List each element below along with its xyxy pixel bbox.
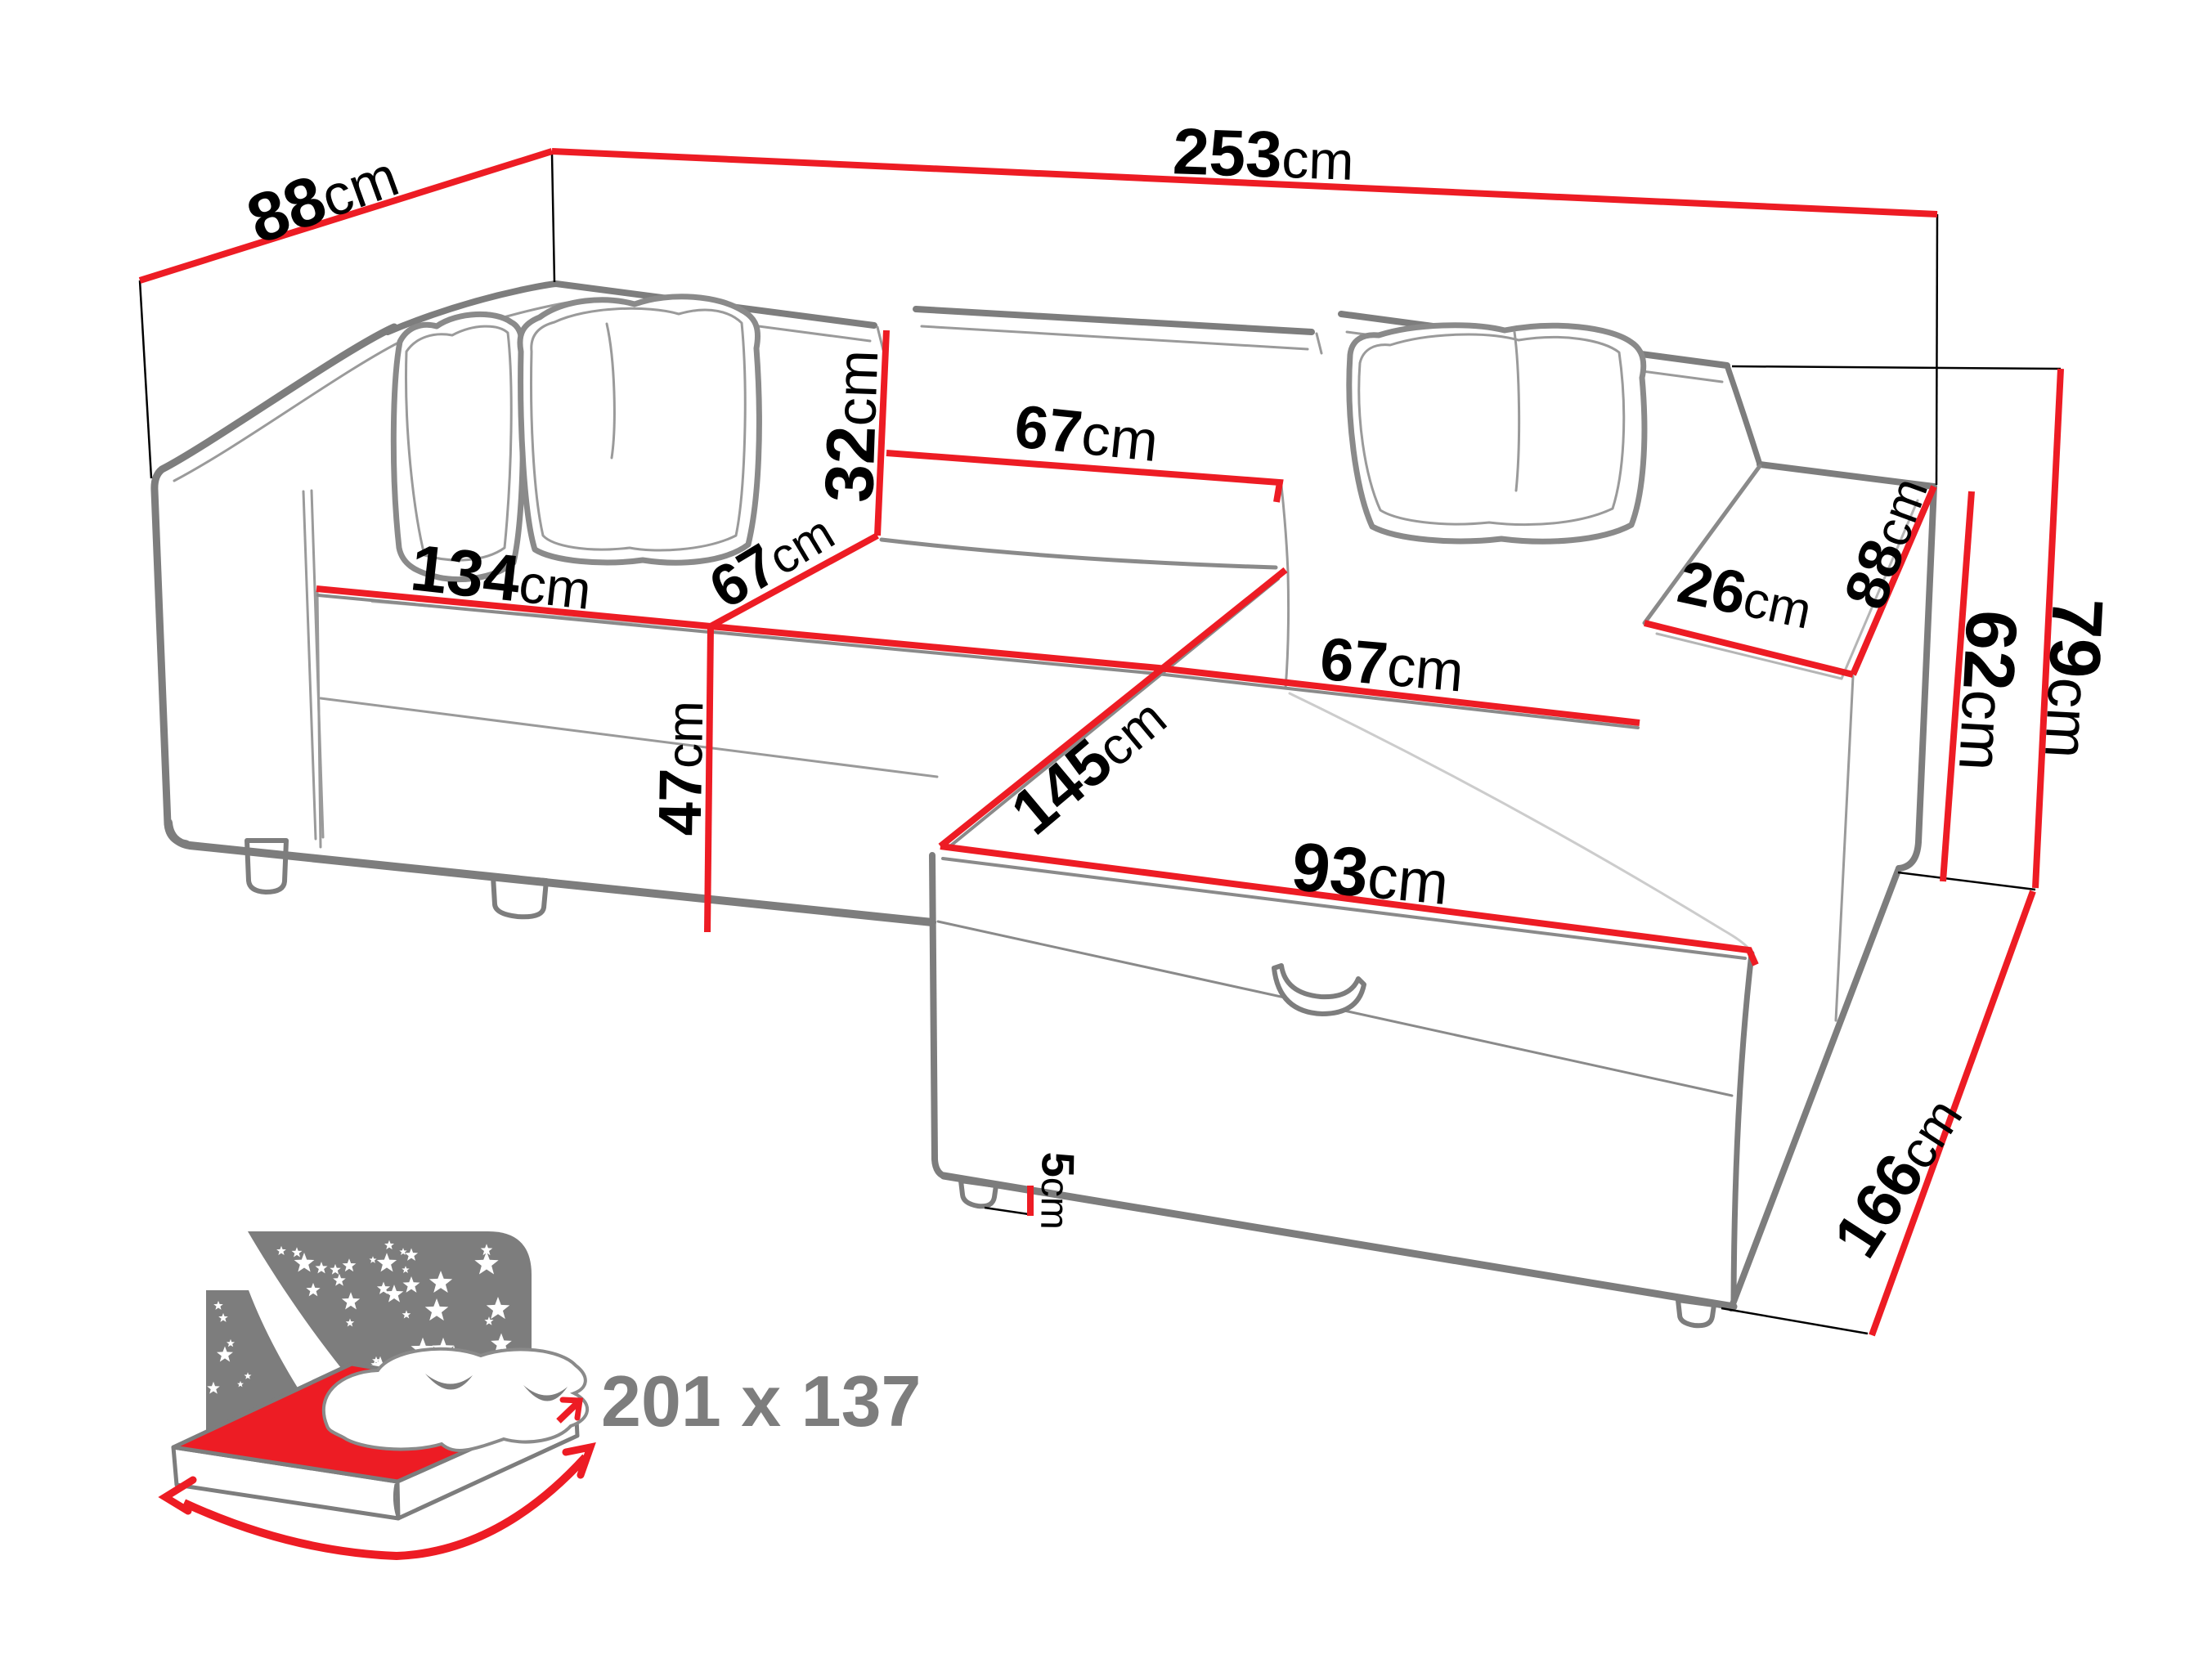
svg-text:145cm: 145cm (998, 679, 1179, 848)
svg-text:26cm: 26cm (1672, 547, 1819, 641)
svg-text:166cm: 166cm (1819, 1083, 1976, 1270)
svg-text:88cm: 88cm (1831, 468, 1941, 617)
svg-text:62cm: 62cm (1944, 608, 2033, 773)
svg-text:67cm: 67cm (1317, 625, 1466, 705)
svg-text:253cm: 253cm (1172, 114, 1355, 194)
svg-text:32cm: 32cm (810, 348, 892, 504)
svg-text:93cm: 93cm (1289, 827, 1452, 919)
svg-text:79cm: 79cm (2030, 596, 2119, 760)
svg-text:201 x 137: 201 x 137 (601, 1361, 922, 1442)
svg-text:88cm: 88cm (237, 134, 407, 258)
svg-text:5cm: 5cm (1031, 1151, 1084, 1230)
svg-text:47cm: 47cm (646, 700, 716, 836)
